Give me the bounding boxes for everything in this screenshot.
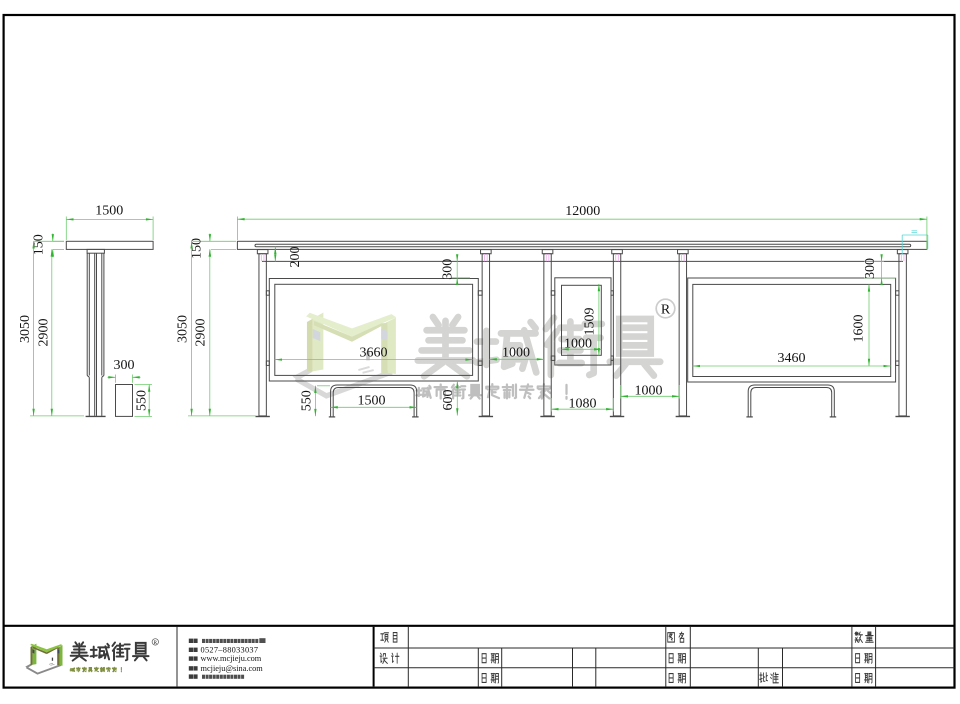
- svg-text:1600: 1600: [852, 315, 867, 343]
- svg-text:1500: 1500: [95, 204, 123, 219]
- svg-text:12000: 12000: [565, 204, 600, 219]
- svg-text:300: 300: [114, 358, 135, 373]
- svg-text:0527–88033037: 0527–88033037: [201, 645, 259, 654]
- svg-text:3460: 3460: [778, 351, 806, 366]
- svg-text:2900: 2900: [37, 319, 52, 347]
- svg-text:1080: 1080: [569, 396, 597, 411]
- svg-text:1500: 1500: [358, 393, 386, 408]
- svg-text:550: 550: [300, 390, 315, 411]
- svg-text:1000: 1000: [635, 384, 663, 399]
- svg-text:600: 600: [441, 390, 456, 411]
- svg-text:www.mcjieju.com: www.mcjieju.com: [201, 654, 262, 663]
- svg-text:3660: 3660: [360, 346, 388, 361]
- svg-text:300: 300: [441, 259, 456, 280]
- svg-text:1000: 1000: [502, 345, 530, 360]
- svg-text:550: 550: [134, 390, 149, 411]
- svg-text:300: 300: [863, 258, 878, 279]
- svg-text:1509: 1509: [583, 308, 598, 336]
- svg-text:mcjieju@sina.com: mcjieju@sina.com: [201, 664, 264, 673]
- svg-text:1000: 1000: [564, 337, 592, 352]
- svg-text:2900: 2900: [194, 319, 209, 347]
- svg-text:R: R: [661, 303, 671, 318]
- svg-text:3050: 3050: [175, 315, 190, 343]
- svg-text:3050: 3050: [18, 315, 33, 343]
- svg-text:200: 200: [288, 247, 303, 268]
